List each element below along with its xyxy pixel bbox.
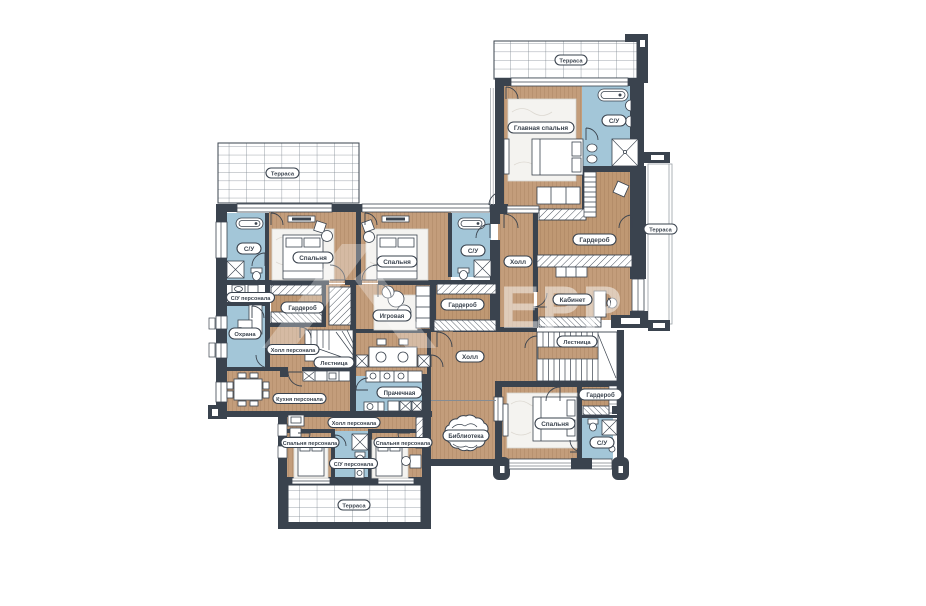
svg-text:Спальня: Спальня — [383, 259, 411, 266]
svg-text:Холл персонала: Холл персонала — [332, 421, 377, 427]
svg-text:Охрана: Охрана — [234, 332, 256, 338]
svg-text:Холл персонала: Холл персонала — [271, 348, 316, 354]
svg-text:Гардероб: Гардероб — [579, 236, 609, 244]
svg-text:Прачечная: Прачечная — [384, 391, 416, 397]
svg-text:Терраса: Терраса — [342, 504, 366, 510]
svg-text:Терраса: Терраса — [271, 172, 295, 178]
svg-text:ЕРР: ЕРР — [500, 274, 623, 341]
svg-text:Игровая: Игровая — [380, 314, 405, 320]
svg-text:Спальня: Спальня — [299, 255, 327, 262]
svg-text:Спальня: Спальня — [541, 421, 569, 428]
svg-text:С/У персонала: С/У персонала — [334, 462, 374, 468]
svg-text:Кухня персонала: Кухня персонала — [276, 397, 324, 403]
svg-text:Терраса: Терраса — [649, 227, 672, 233]
svg-text:Главная спальня: Главная спальня — [514, 125, 569, 132]
svg-text:С/У: С/У — [468, 248, 479, 255]
svg-text:Терраса: Терраса — [559, 59, 583, 65]
svg-text:Кабинет: Кабинет — [560, 296, 586, 304]
svg-text:Холл: Холл — [510, 259, 526, 266]
svg-text:С/У: С/У — [244, 246, 255, 253]
svg-text:С/У персонала: С/У персонала — [231, 296, 271, 302]
svg-text:С/У: С/У — [597, 440, 608, 447]
svg-text:С/У: С/У — [609, 118, 620, 125]
svg-text:Спальня персонала: Спальня персонала — [376, 441, 431, 447]
svg-text:Холл: Холл — [462, 354, 478, 361]
svg-text:Гардероб: Гардероб — [448, 302, 477, 309]
svg-text:Библиотека: Библиотека — [448, 433, 484, 440]
svg-text:Лестница: Лестница — [563, 340, 591, 346]
svg-text:Спальня персонала: Спальня персонала — [283, 441, 338, 447]
svg-text:Лестница: Лестница — [320, 361, 348, 367]
svg-text:Гардероб: Гардероб — [586, 392, 615, 399]
svg-text:Гардероб: Гардероб — [288, 305, 317, 312]
